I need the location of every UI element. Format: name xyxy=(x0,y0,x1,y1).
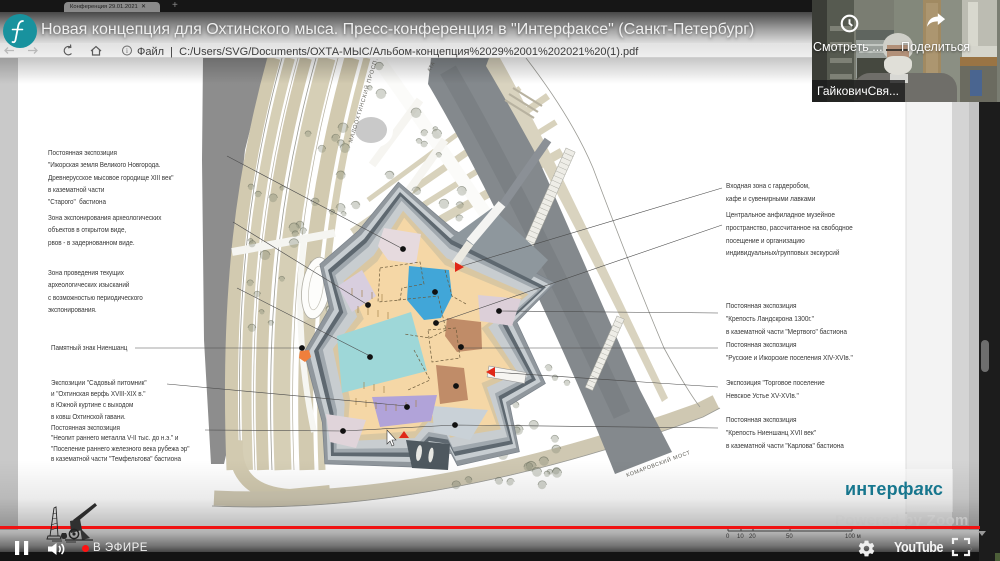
svg-text:0: 0 xyxy=(726,534,730,540)
svg-text:50: 50 xyxy=(786,534,793,540)
svg-text:20: 20 xyxy=(749,534,756,540)
svg-text:10: 10 xyxy=(737,534,744,540)
svg-text:i: i xyxy=(126,47,128,55)
